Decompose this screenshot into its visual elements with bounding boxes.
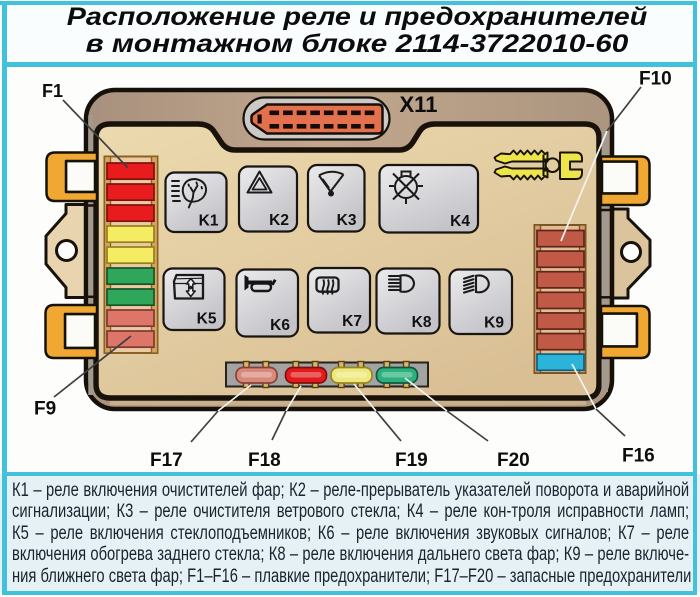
svg-text:K9: K9: [484, 315, 504, 332]
svg-text:K5: K5: [197, 311, 217, 328]
svg-text:X11: X11: [400, 92, 438, 117]
svg-text:F18: F18: [248, 450, 281, 471]
svg-text:K1: K1: [199, 213, 219, 230]
svg-text:F16: F16: [622, 446, 655, 467]
svg-text:K8: K8: [412, 314, 432, 331]
svg-text:K6: K6: [270, 317, 290, 334]
svg-text:F1: F1: [42, 81, 63, 101]
svg-text:F9: F9: [34, 399, 56, 420]
svg-text:K7: K7: [342, 313, 362, 330]
svg-text:K4: K4: [450, 213, 470, 230]
svg-text:K3: K3: [337, 212, 357, 229]
svg-text:F10: F10: [639, 69, 672, 90]
svg-text:F17: F17: [150, 450, 183, 471]
svg-text:K2: K2: [269, 212, 289, 229]
svg-text:F20: F20: [497, 450, 530, 471]
svg-text:F19: F19: [395, 450, 428, 471]
